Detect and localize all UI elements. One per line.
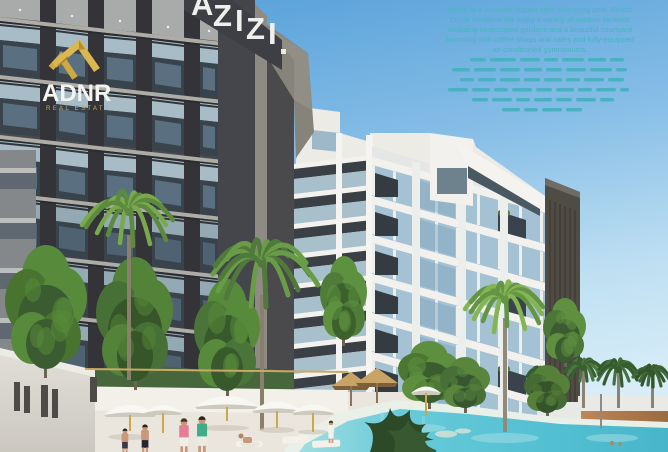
svg-text:ADNR: ADNR: [42, 80, 111, 107]
svg-text:REAL ESTATE: REAL ESTATE: [46, 105, 111, 112]
svg-text:Home to a beautiful lagoon sty: Home to a beautiful lagoon style swimmin…: [448, 5, 632, 14]
svg-text:including landscaped gardens a: including landscaped gardens and a beaut…: [448, 25, 632, 34]
svg-text:air-conditioned gymnasiums.: air-conditioned gymnasiums.: [492, 45, 587, 54]
svg-text:Oasis residents will enjoy a v: Oasis residents will enjoy a variety of …: [450, 15, 629, 24]
svg-text:Z: Z: [213, 0, 232, 33]
svg-text:A: A: [191, 0, 213, 22]
svg-text:Z: Z: [246, 11, 265, 46]
svg-text:I: I: [268, 16, 277, 51]
svg-text:brimming with coffee shops and: brimming with coffee shops and cafes and…: [446, 35, 635, 44]
svg-text:I: I: [235, 3, 244, 38]
